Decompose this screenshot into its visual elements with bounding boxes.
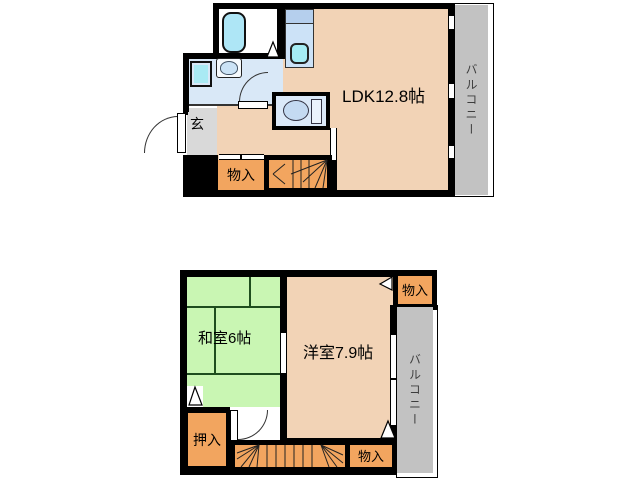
wall	[280, 270, 287, 333]
western-room-label: 洋室7.9帖	[303, 346, 373, 362]
ldk-label: LDK12.8帖	[342, 88, 425, 105]
door-leaf	[177, 113, 186, 153]
kitchen-sink	[290, 43, 309, 64]
balcony-upper: バルコニー	[455, 5, 488, 195]
storage-upper-right: 物入	[398, 276, 432, 304]
door-swing-arc	[144, 116, 178, 153]
balcony-lower: バルコニー	[397, 307, 433, 473]
door-leaf	[238, 101, 268, 109]
closet-oshiire: 押入	[188, 413, 226, 466]
sliding-door-tick	[240, 154, 242, 160]
door-triangle-marker	[265, 40, 281, 58]
balcony-label: バルコニー	[463, 63, 480, 138]
wall	[183, 53, 189, 112]
door-leaf	[230, 410, 238, 442]
door-swing-arc	[238, 410, 268, 440]
entrance-label: 玄	[190, 117, 204, 131]
tatami-line	[187, 373, 280, 375]
kitchen-stove	[286, 10, 313, 24]
washing-machine	[190, 61, 212, 87]
door-triangle-marker	[379, 418, 397, 440]
floor-plan: バルコニー 物入 LDK12.8帖 玄	[0, 0, 640, 480]
tatami-line	[187, 306, 280, 308]
wall	[218, 190, 452, 197]
wall	[213, 3, 455, 9]
bathtub	[222, 12, 246, 53]
tatami-line	[249, 277, 251, 308]
stairs-lower-lines	[235, 445, 345, 467]
storage-upper: 物入	[218, 160, 264, 190]
storage-label: 物入	[358, 450, 384, 463]
washbasin-bowl	[220, 61, 238, 75]
wall	[183, 155, 218, 197]
stairs-upper-lines	[269, 160, 327, 188]
toilet-tank	[311, 99, 322, 124]
storage-label: 物入	[402, 284, 428, 297]
door-triangle-marker	[187, 385, 205, 407]
wall	[280, 373, 287, 442]
storage-lower: 物入	[350, 445, 392, 467]
japanese-room-label: 和室6帖	[198, 331, 251, 346]
closet-label: 押入	[193, 433, 221, 447]
door-triangle-marker	[378, 275, 394, 293]
balcony-label: バルコニー	[407, 353, 424, 428]
wall	[213, 3, 219, 59]
toilet-bowl	[283, 100, 309, 121]
sliding-door	[280, 333, 287, 373]
storage-label: 物入	[227, 168, 255, 182]
